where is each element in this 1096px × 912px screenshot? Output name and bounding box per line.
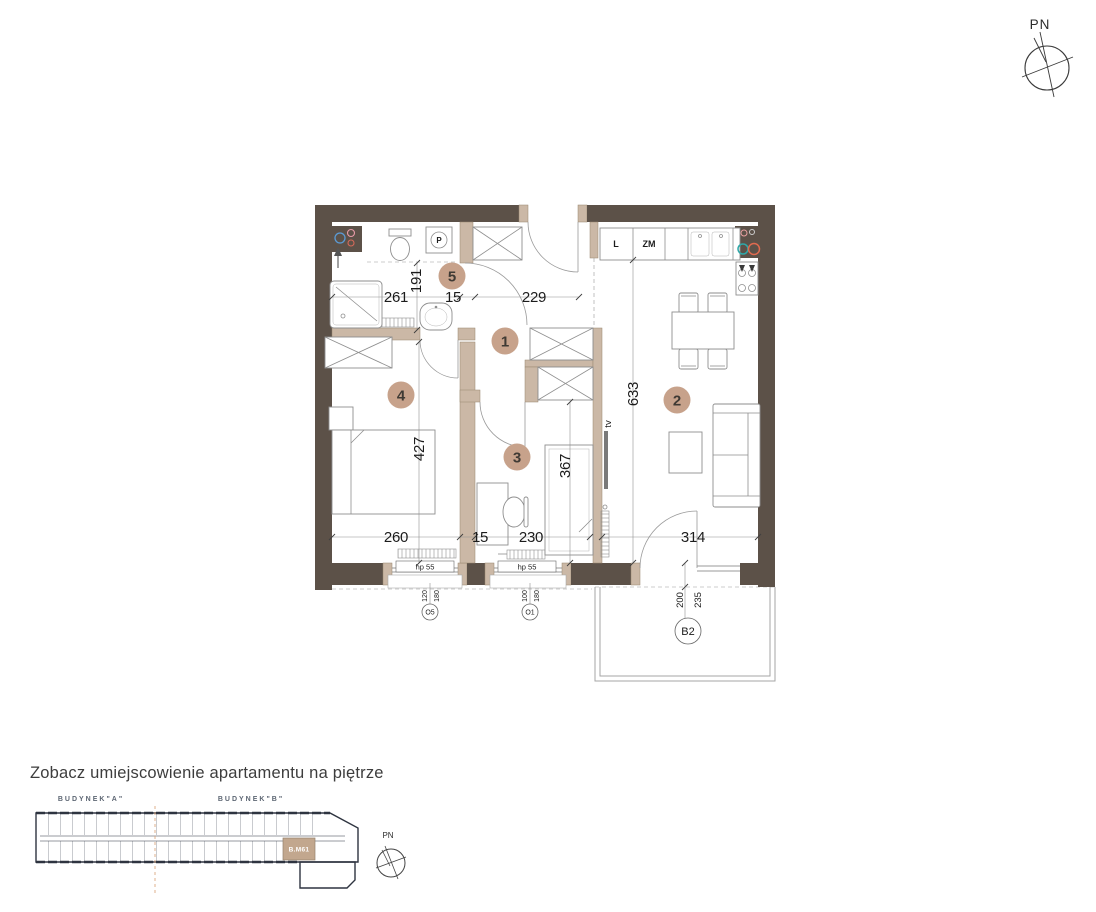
entrance-door-arc [528,222,578,272]
tv-unit [604,431,608,489]
dim-wall-top: 15 [445,289,461,306]
dining-set [672,293,734,369]
dim-bedroom-width: 260 [384,529,408,546]
window-o1-sill-label: hp 55 [518,563,537,572]
bathroom-door-arc [465,263,527,325]
compass-needle [1040,32,1054,97]
floorplan-canvas: PN [0,0,1096,912]
window-o1: hp 55 [490,561,566,588]
room-3-badge: 3 [504,444,531,471]
dim-room3-depth: 367 [557,454,574,478]
footer: Zobacz umiejscowienie apartamentu na pię… [30,764,406,893]
nightstand [329,407,353,430]
coffee-table [669,432,702,473]
dim-bath-width: 261 [384,289,408,306]
washing-machine-label: P [436,236,442,245]
window-o1-code: O1 [525,610,534,617]
building-b-label: BUDYNEK"B" [218,796,284,803]
window-o5-code: O5 [425,610,434,617]
compass-mini-label: PN [382,831,393,840]
building-overview: B.M61 [36,806,358,893]
dim-room3-width: 230 [519,529,543,546]
tv-label: tv [603,420,614,428]
fridge-label: L [613,239,619,249]
room-1-badge: 1 [492,328,519,355]
building-a-label: BUDYNEK"A" [58,796,124,803]
floor-location-heading: Zobacz umiejscowienie apartamentu na pię… [30,764,384,782]
dim-apartment-depth: 633 [625,382,642,406]
bathroom-fixtures: P [330,227,452,330]
svg-text:5: 5 [448,269,456,286]
toilet [389,229,411,236]
room-2-badge: 2 [664,387,691,414]
opening-badges: 120 180 O5 100 180 O1 B2 [422,590,701,644]
dim-wall-bottom: 15 [472,529,488,546]
kitchen-counter [600,228,740,260]
svg-text:3: 3 [513,450,521,467]
dim-bedroom-depth: 427 [411,437,428,461]
room-5-badge: 5 [439,263,466,290]
balcony-code: B2 [681,626,694,638]
dim-living-width: 314 [681,529,705,546]
dim-balcony-width: 235 [693,592,704,608]
window-o5-height: 180 [434,590,441,602]
room-4-badge: 4 [388,382,415,409]
stove [736,262,758,295]
desk-chair [503,497,525,527]
window-o1-height: 180 [534,590,541,602]
room3-door-arc [480,402,525,447]
compass-north-label: PN [1030,17,1051,32]
floorplan-page: PN [0,0,1096,912]
dim-bath-depth: 191 [408,269,425,293]
compass-mini: PN [376,831,406,879]
dim-hall-width: 229 [522,289,546,306]
svg-text:1: 1 [501,334,509,351]
svg-text:2: 2 [673,393,681,410]
sofa [713,404,760,507]
utility-shaft-bath [332,226,362,252]
dishwasher-label: ZM [643,239,656,249]
compass-main: PN [1022,17,1073,97]
dim-balcony-depth: 200 [675,592,686,608]
window-o5: hp 55 [388,561,462,588]
window-o5-width: 120 [422,590,429,602]
bedroom-door-arc [420,340,458,378]
kitchen-fixtures: L ZM [600,228,760,295]
window-o1-width: 100 [522,590,529,602]
unit-highlight-label: B.M61 [289,847,310,854]
balcony-window [697,566,740,571]
svg-text:4: 4 [397,388,406,405]
